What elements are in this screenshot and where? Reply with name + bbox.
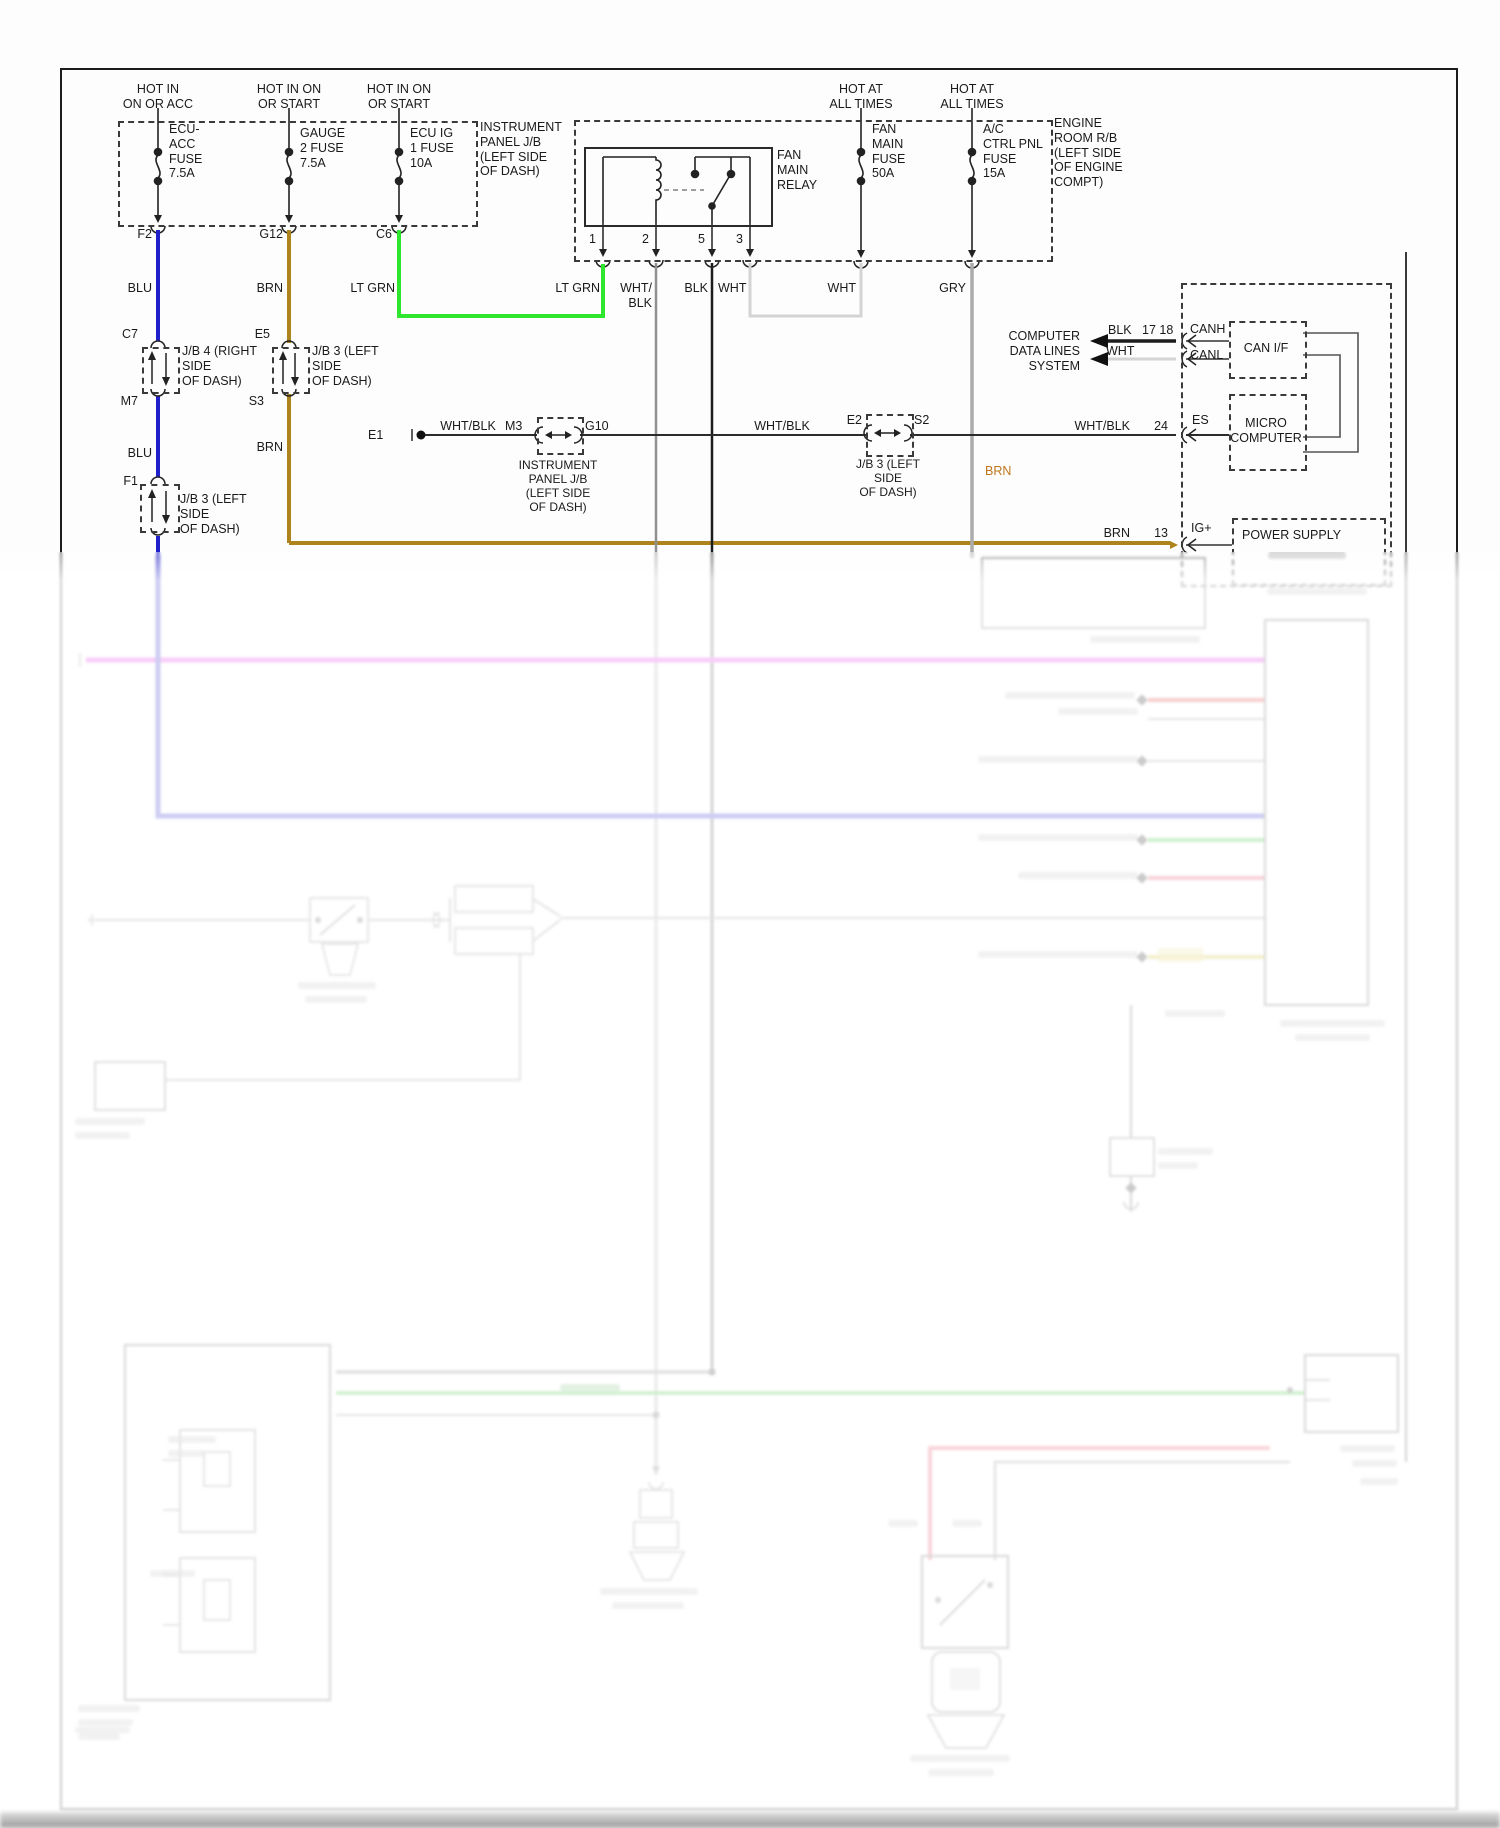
power-supply-label: POWER SUPPLY xyxy=(1242,528,1341,543)
wire-label-brn-1: BRN xyxy=(235,281,283,296)
connector-c6: C6 xyxy=(352,227,392,242)
wire-label-whtblk-1: WHT/BLK xyxy=(432,419,504,434)
instrument-panel-jb-label: INSTRUMENT PANEL J/B (LEFT SIDE OF DASH) xyxy=(480,120,562,179)
relay-pin-3: 3 xyxy=(725,232,743,247)
connector-canl: CANL xyxy=(1190,348,1223,363)
fuse-label-fan-main: FAN MAIN FUSE 50A xyxy=(872,122,905,181)
wire-brn-long xyxy=(289,394,1170,543)
ip-jb-m3-caption: INSTRUMENT PANEL J/B (LEFT SIDE OF DASH) xyxy=(508,458,608,515)
e2-s2-box xyxy=(866,414,914,457)
engine-room-rb-label: ENGINE ROOM R/B (LEFT SIDE OF ENGINE COM… xyxy=(1054,116,1123,190)
connector-m7: M7 xyxy=(100,394,138,409)
power-header-2: HOT IN ON OR START xyxy=(244,82,334,112)
wire-label-blk-relay: BLK xyxy=(660,281,708,296)
connector-s3: S3 xyxy=(226,394,264,409)
wire-label-whtblk-2: WHT/BLK xyxy=(746,419,818,434)
micro-computer-label: MICRO COMPUTER xyxy=(1229,416,1303,446)
pins-17-18: 17 18 xyxy=(1142,323,1173,338)
pin-13: 13 xyxy=(1140,526,1168,541)
connector-g10: G10 xyxy=(585,419,609,434)
power-header-1: HOT IN ON OR ACC xyxy=(113,82,203,112)
power-header-5: HOT AT ALL TIMES xyxy=(927,82,1017,112)
connector-m3: M3 xyxy=(505,419,522,434)
computer-data-lines-label: COMPUTER DATA LINES SYSTEM xyxy=(990,329,1080,373)
jb3-e5-caption: J/B 3 (LEFT SIDE OF DASH) xyxy=(312,344,379,388)
relay-pin-2: 2 xyxy=(631,232,649,247)
connector-es: ES xyxy=(1192,413,1209,428)
wire-label-wht-can: WHT xyxy=(1106,344,1134,359)
wire-label-whtblk-3: WHT/BLK xyxy=(1058,419,1130,434)
faded-region-overlay xyxy=(0,552,1500,1828)
connector-canh: CANH xyxy=(1190,322,1225,337)
page-bottom-shadow xyxy=(0,1812,1500,1828)
relay-pin-1: 1 xyxy=(578,232,596,247)
wire-label-wht-relay: WHT xyxy=(718,281,746,296)
fuse-label-gauge2: GAUGE 2 FUSE 7.5A xyxy=(300,126,345,170)
wire-label-brn-4: BRN xyxy=(1080,526,1130,541)
fuse-label-ecu-acc: ECU- ACC FUSE 7.5A xyxy=(169,122,202,181)
pin-24: 24 xyxy=(1140,419,1168,434)
wire-label-ltgrn-2: LT GRN xyxy=(545,281,600,296)
jb3-e2-caption: J/B 3 (LEFT SIDE OF DASH) xyxy=(838,457,938,499)
jb4-connector-box xyxy=(142,347,180,394)
fuse-label-ac-ctrl: A/C CTRL PNL FUSE 15A xyxy=(983,122,1043,181)
wire-label-blu-1: BLU xyxy=(104,281,152,296)
fuse-label-ecu-ig1: ECU IG 1 FUSE 10A xyxy=(410,126,454,170)
can-if-label: CAN I/F xyxy=(1229,341,1303,356)
wire-brn-arrow xyxy=(1170,541,1178,549)
wire-label-wht-fan: WHT xyxy=(810,281,856,296)
jb3-e5-connector-box xyxy=(272,347,310,394)
connector-e5: E5 xyxy=(234,327,270,342)
power-header-3: HOT IN ON OR START xyxy=(354,82,444,112)
wire-label-ltgrn-1: LT GRN xyxy=(340,281,395,296)
wiring-diagram-page: HOT IN ON OR ACC HOT IN ON OR START HOT … xyxy=(0,0,1500,1828)
fan-main-relay-box xyxy=(584,147,773,227)
wire-label-gry: GRY xyxy=(918,281,966,296)
wire-label-blk-can: BLK xyxy=(1108,323,1132,338)
connector-c7: C7 xyxy=(102,327,138,342)
connector-ig: IG+ xyxy=(1191,521,1212,536)
connector-e2: E2 xyxy=(824,413,862,428)
jb4-caption: J/B 4 (RIGHT SIDE OF DASH) xyxy=(182,344,257,388)
connector-e1: E1 xyxy=(368,428,383,443)
wire-ltgrn xyxy=(399,230,603,316)
jb3-f1-caption: J/B 3 (LEFT SIDE OF DASH) xyxy=(180,492,247,536)
m3-g10-box xyxy=(537,417,584,455)
jb3-f1-connector-box xyxy=(140,484,180,533)
wire-label-brn-2: BRN xyxy=(235,440,283,455)
wire-label-blu-2: BLU xyxy=(104,446,152,461)
wire-label-whtblk-relay: WHT/ BLK xyxy=(604,281,652,311)
power-header-4: HOT AT ALL TIMES xyxy=(816,82,906,112)
fan-main-relay-label: FAN MAIN RELAY xyxy=(777,148,817,192)
relay-pin-5: 5 xyxy=(687,232,705,247)
connector-s2: S2 xyxy=(914,413,929,428)
connector-f1: F1 xyxy=(100,474,138,489)
connector-f2: F2 xyxy=(112,227,152,242)
connector-g12: G12 xyxy=(243,227,283,242)
wire-label-brn-3: BRN xyxy=(985,464,1011,479)
